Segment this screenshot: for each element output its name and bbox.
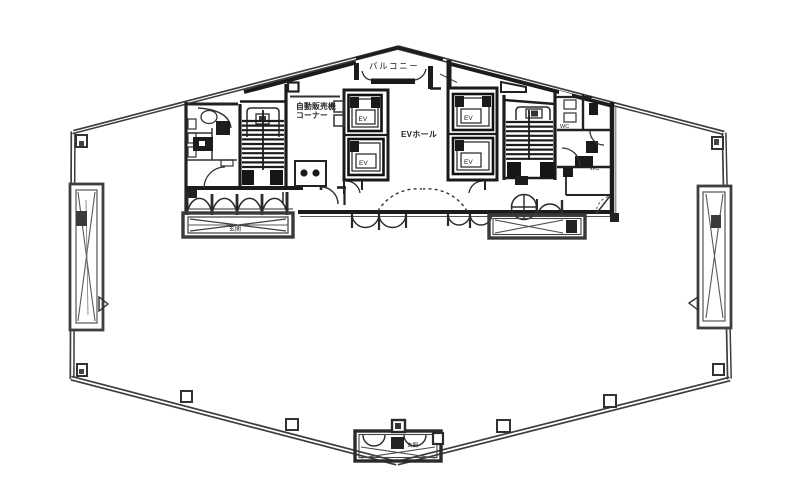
- svg-text:EV: EV: [464, 159, 473, 166]
- svg-text:EV: EV: [359, 160, 368, 167]
- svg-text:WC: WC: [560, 124, 569, 130]
- svg-text:WC: WC: [590, 166, 599, 172]
- svg-text:EV: EV: [359, 116, 368, 123]
- svg-text:玄関: 玄関: [229, 225, 241, 233]
- svg-text:コーナー: コーナー: [296, 111, 328, 120]
- svg-text:EV: EV: [464, 115, 473, 122]
- svg-text:自動販売機: 自動販売機: [296, 101, 336, 111]
- svg-text:EVホール: EVホール: [401, 130, 437, 139]
- svg-text:玄関: 玄関: [407, 441, 419, 449]
- svg-text:バルコニー: バルコニー: [369, 61, 419, 71]
